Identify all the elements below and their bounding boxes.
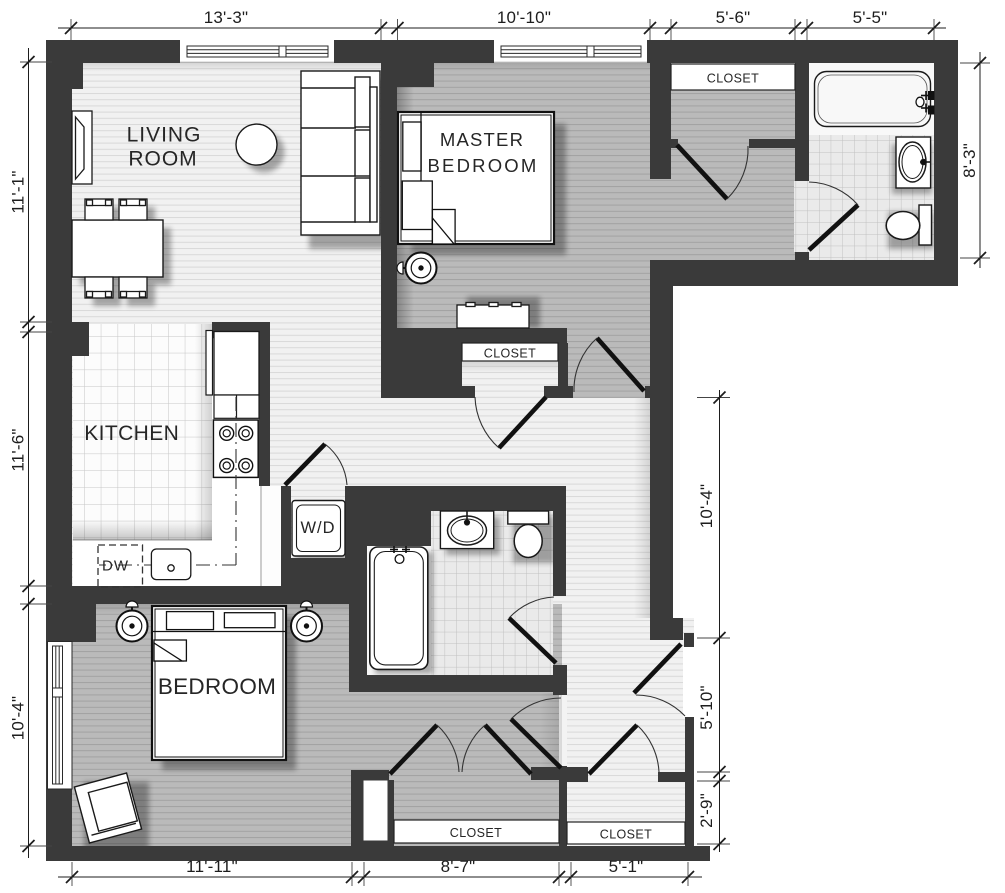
- svg-text:DW: DW: [102, 558, 129, 575]
- svg-text:ROOM: ROOM: [128, 148, 197, 171]
- svg-text:11'-6": 11'-6": [9, 428, 28, 471]
- svg-text:13'-3": 13'-3": [204, 8, 249, 27]
- svg-text:CLOSET: CLOSET: [450, 826, 502, 840]
- svg-text:8'-3": 8'-3": [960, 143, 979, 178]
- svg-text:W/D: W/D: [300, 519, 335, 537]
- svg-text:CLOSET: CLOSET: [484, 347, 536, 361]
- svg-text:CLOSET: CLOSET: [600, 828, 652, 842]
- svg-text:MASTER: MASTER: [440, 129, 524, 150]
- svg-text:11'-11": 11'-11": [186, 857, 238, 876]
- svg-text:10'-10": 10'-10": [497, 8, 551, 27]
- svg-text:5'-1": 5'-1": [609, 857, 644, 876]
- svg-text:5'-5": 5'-5": [853, 8, 888, 27]
- svg-text:CLOSET: CLOSET: [707, 72, 759, 86]
- svg-text:KITCHEN: KITCHEN: [84, 422, 179, 445]
- svg-text:2'-9": 2'-9": [697, 793, 716, 828]
- svg-text:11'-1": 11'-1": [9, 170, 28, 213]
- svg-text:10'-4": 10'-4": [697, 484, 716, 529]
- svg-text:5'-10": 5'-10": [697, 685, 716, 730]
- svg-text:8'-7": 8'-7": [441, 857, 476, 876]
- svg-text:LIVING: LIVING: [127, 124, 202, 147]
- svg-text:BEDROOM: BEDROOM: [158, 674, 276, 699]
- svg-text:10'-4": 10'-4": [9, 696, 28, 741]
- svg-text:BEDROOM: BEDROOM: [428, 155, 539, 176]
- svg-text:5'-6": 5'-6": [716, 8, 751, 27]
